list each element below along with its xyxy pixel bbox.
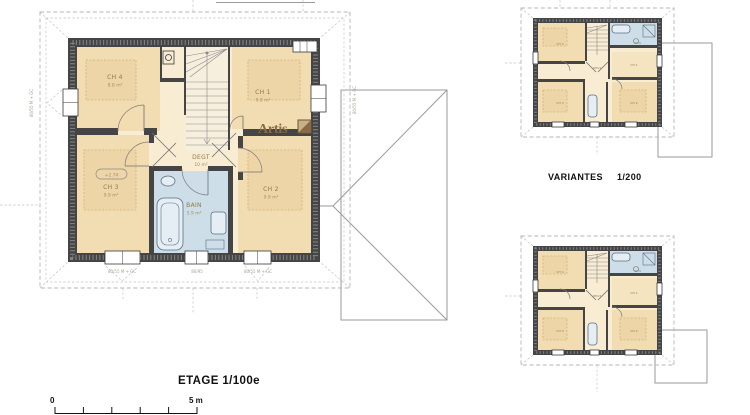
variant-top-plan: CH 4 CH 3 CH 2 CH 1 DEGT BAIN: [505, 0, 712, 157]
label-ch4: CH 4: [107, 74, 123, 81]
variant-bottom-garage: [655, 330, 707, 383]
level-marker-value: +2.74: [105, 173, 119, 179]
title-block: ETAGE 1/100e: [178, 375, 260, 387]
svg-text:CH 2: CH 2: [630, 329, 637, 333]
svg-text:CH 4: CH 4: [556, 270, 563, 274]
staircase: [186, 47, 228, 150]
variant-bottom-plan: CH 4 CH 3 CH 2 CH 1 DEGT BAIN: [505, 236, 707, 392]
label-bain: BAIN: [186, 202, 202, 209]
garage-roof-outline: [320, 90, 447, 320]
svg-text:CH 3: CH 3: [556, 329, 563, 333]
main-title: ETAGE 1/100e: [178, 375, 260, 387]
svg-text:CH 4: CH 4: [556, 42, 563, 46]
scale-zero: 0: [50, 396, 55, 405]
svg-text:CH 1: CH 1: [630, 63, 637, 67]
floorplan-sheet: +2.74 CH 4 8.8 m² CH 1 9.8 m² CH 3 9.9 m…: [0, 0, 750, 415]
main-plan: +2.74 CH 4 8.8 m² CH 1 9.8 m² CH 3 9.9 m…: [0, 0, 447, 320]
dim-left: 80/55 M + GC: [29, 89, 34, 117]
svg-text:DEGT: DEGT: [593, 294, 601, 298]
area-deg: 10 m²: [194, 162, 208, 168]
variants-title: VARIANTES 1/200: [548, 172, 642, 182]
chimney-niche: [293, 41, 317, 52]
svg-text:DEGT: DEGT: [593, 66, 601, 70]
svg-text:CH 2: CH 2: [630, 101, 637, 105]
floorplan-drawing: +2.74 CH 4 8.8 m² CH 1 9.8 m² CH 3 9.9 m…: [0, 0, 750, 415]
area-ch4: 8.8 m²: [108, 83, 123, 89]
artis-logo-text: Artis: [258, 122, 288, 137]
dim-bottom-right: 80/55 M + GC: [244, 269, 272, 274]
dim-bottom-left: 80/55 M + GC: [108, 269, 136, 274]
label-deg: DEGT: [192, 154, 210, 161]
variants-title-scale: 1/200: [617, 172, 642, 182]
label-ch1: CH 1: [255, 89, 271, 96]
toilet: [211, 212, 226, 234]
area-ch3: 9.9 m²: [104, 193, 119, 199]
scale-bar: 0 5 m: [50, 396, 203, 414]
variants-title-text: VARIANTES: [548, 172, 603, 182]
svg-text:CH 3: CH 3: [556, 101, 563, 105]
svg-text:BAIN: BAIN: [635, 269, 641, 273]
scale-five: 5 m: [189, 396, 203, 405]
area-bain: 5.9 m²: [187, 211, 202, 217]
svg-text:BAIN: BAIN: [635, 41, 641, 45]
variant-top-garage: [658, 43, 712, 157]
svg-text:CH 1: CH 1: [630, 291, 637, 295]
washbasin: [161, 176, 175, 186]
dim-right: 80/55 M + GC: [352, 86, 357, 114]
area-ch2: 9.9 m²: [264, 195, 279, 201]
label-ch3: CH 3: [103, 184, 119, 191]
label-ch2: CH 2: [263, 186, 279, 193]
dim-bottom-center: 80/95: [191, 269, 203, 274]
area-ch1: 9.8 m²: [256, 98, 271, 104]
